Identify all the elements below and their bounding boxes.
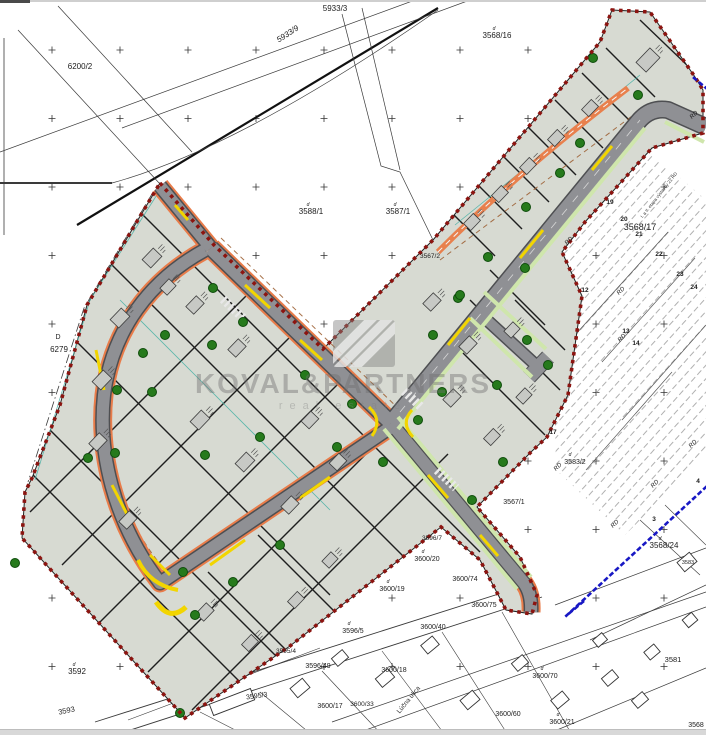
map-label: d (307, 202, 310, 208)
map-label: 3596/7 (422, 535, 442, 542)
tree-icon (576, 139, 585, 148)
tree-icon (429, 331, 438, 340)
tree-icon (556, 169, 565, 178)
tree-icon (139, 349, 148, 358)
cadastral-plan-svg: 5933/35933/96200/23568/163588/13587/1D62… (0, 0, 706, 735)
tree-icon (544, 361, 553, 370)
map-label: 3568 (688, 722, 704, 729)
map-label: 3600/18 (381, 667, 406, 674)
tree-icon (301, 371, 310, 380)
tree-icon (456, 291, 465, 300)
map-label: d (569, 452, 572, 458)
map-label: 3600/17 (317, 703, 342, 710)
tree-icon (521, 264, 530, 273)
map-label: 3568/24 (650, 541, 679, 550)
tree-icon (333, 443, 342, 452)
tree-icon (484, 253, 493, 262)
map-label: d (394, 202, 397, 208)
map-label: 20 (620, 216, 628, 223)
tree-icon (414, 416, 423, 425)
map-label: 12 (581, 287, 589, 294)
existing-house (290, 678, 310, 697)
map-label: 23 (676, 271, 684, 278)
map-label: 3600/33 (350, 701, 374, 708)
tree-icon (208, 341, 217, 350)
map-label: 3592 (68, 667, 86, 676)
tree-icon (634, 91, 643, 100)
screenshot-top-edge-dark (0, 0, 30, 3)
tree-icon (522, 203, 531, 212)
map-label: 3581 (665, 655, 682, 664)
map-label: 3600/75 (471, 602, 496, 609)
map-label: 3600/40 (420, 624, 445, 631)
tree-icon (191, 611, 200, 620)
map-label: 3583/2 (564, 459, 586, 466)
tree-icon (276, 541, 285, 550)
screenshot-top-edge (0, 0, 706, 2)
map-label: 4 (696, 478, 700, 485)
map-label: d (387, 579, 390, 585)
existing-house (421, 636, 440, 654)
tree-icon (148, 388, 157, 397)
tree-icon (468, 496, 477, 505)
map-label: 3600/74 (452, 576, 477, 583)
map-label: 3583 (682, 560, 694, 566)
tree-icon (179, 568, 188, 577)
map-label: 3600/70 (532, 673, 557, 680)
map-label: 5933/3 (323, 4, 348, 13)
tree-icon (493, 381, 502, 390)
existing-house (644, 644, 660, 660)
map-label: 22 (655, 251, 663, 258)
map-label: 3588/1 (299, 207, 324, 216)
map-label: 3596/5 (342, 628, 364, 635)
map-label: 3 (652, 516, 656, 523)
tree-icon (499, 458, 508, 467)
map-label: 3600/20 (414, 556, 439, 563)
existing-house (460, 690, 480, 709)
existing-house (593, 633, 608, 648)
map-label: D (55, 334, 60, 341)
map-label: d (541, 666, 544, 672)
map-label: d (73, 662, 76, 668)
tree-icon (84, 454, 93, 463)
map-label: 3568/16 (483, 31, 512, 40)
existing-house (551, 691, 570, 709)
map-label: 5933/9 (275, 23, 301, 44)
tree-icon (589, 54, 598, 63)
map-label: 19 (606, 199, 614, 206)
tree-icon (201, 451, 210, 460)
map-label: 6279 (50, 345, 68, 354)
map-label: 3595/4 (276, 648, 296, 655)
tree-icon (239, 318, 248, 327)
existing-house (631, 692, 648, 709)
screenshot-bottom-edge (0, 729, 706, 735)
map-label: 3567/2 (420, 253, 440, 260)
map-label: 6200/2 (68, 62, 93, 71)
map-label: 17 (549, 429, 557, 436)
tree-icon (348, 400, 357, 409)
map-label: 3600/21 (549, 719, 574, 726)
tree-icon (209, 284, 218, 293)
map-label: d (493, 26, 496, 32)
existing-house (511, 655, 528, 672)
tree-icon (438, 388, 447, 397)
map-label: 3587/1 (386, 207, 411, 216)
map-label: 3600/19 (379, 586, 404, 593)
map-label: Lúčna ulica (396, 685, 422, 715)
map-label: d (422, 549, 425, 555)
map-label: 3593 (57, 704, 75, 716)
tree-icon (111, 449, 120, 458)
map-label: 3596/49 (305, 663, 330, 670)
tree-icon (379, 458, 388, 467)
tree-icon (256, 433, 265, 442)
map-label: d (348, 621, 351, 627)
map-label: 21 (635, 231, 643, 238)
map-label: 3567/1 (503, 499, 525, 506)
tree-icon (161, 331, 170, 340)
tree-icon (523, 336, 532, 345)
site-plan-map: 5933/35933/96200/23568/163588/13587/1D62… (0, 0, 706, 735)
map-label: d (557, 712, 560, 718)
tree-icon (229, 578, 238, 587)
map-label: 3600/60 (495, 711, 520, 718)
map-label: d (659, 536, 662, 542)
tree-icon (11, 559, 20, 568)
tree-icon (113, 386, 122, 395)
map-label: 14 (632, 340, 640, 347)
existing-house (601, 670, 618, 687)
map-label: 24 (690, 284, 698, 291)
